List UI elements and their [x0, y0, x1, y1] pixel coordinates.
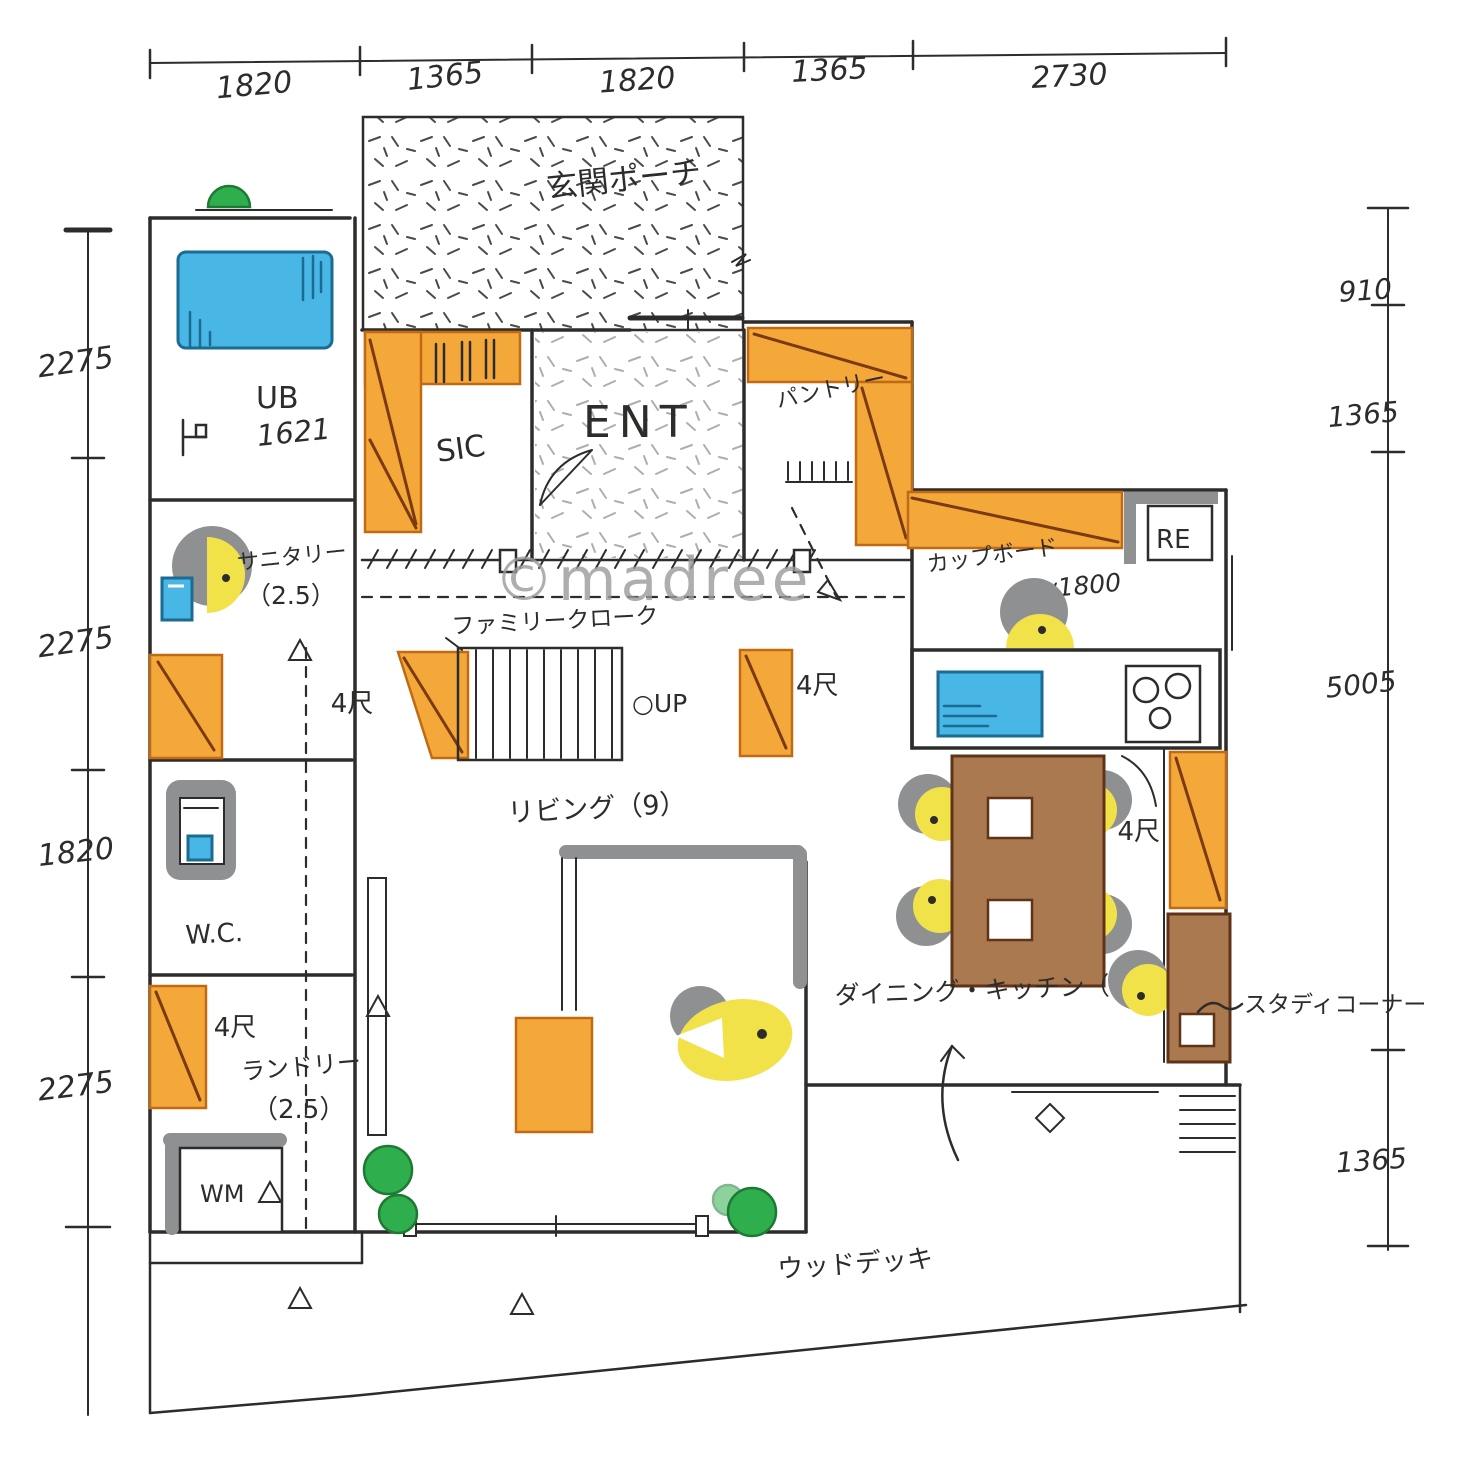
dimension-top: 1820 1365 1820 1365 2730	[150, 38, 1226, 106]
faucet	[183, 420, 206, 455]
sanitary-area: （2.5）	[246, 581, 336, 610]
sanitary-room: サニタリー （2.5）	[162, 526, 348, 620]
kitchen: カップボード w1800 RE	[908, 492, 1220, 748]
dining-table	[952, 756, 1104, 986]
toilet-room: W.C.	[166, 780, 244, 951]
porch: 玄関ポーチ	[363, 117, 750, 330]
wc-label: W.C.	[185, 918, 244, 951]
closet-label-laundry: 4尺	[214, 1013, 257, 1043]
closet-label-study: 4尺	[1117, 817, 1160, 847]
dim-top-4: 1365	[790, 51, 868, 90]
washer-label: WM	[200, 1180, 244, 1208]
pantry-hatch	[786, 462, 852, 482]
study-corner: 4尺 スタディコーナー	[1108, 752, 1426, 1062]
fridge-label: RE	[1156, 525, 1191, 555]
dimension-left: 2275 2275 1820 2275	[35, 230, 115, 1415]
pantry: パントリー	[748, 328, 912, 545]
dim-top-1: 1820	[215, 65, 294, 107]
floorplan-sketch: 1820 1365 1820 1365 2730 2275 2275 1820 …	[0, 0, 1459, 1466]
laundry-area: （2.5）	[252, 1095, 345, 1125]
bench-hatch	[1180, 1096, 1235, 1152]
bath-label: UB	[256, 381, 299, 416]
study-corner-label: スタディコーナー	[1244, 992, 1426, 1018]
door-mark	[289, 640, 311, 660]
tv-board	[516, 1018, 592, 1132]
sanitary-label: サニタリー	[236, 540, 348, 576]
wood-deck-label: ウッドデッキ	[776, 1244, 934, 1285]
watermark: ©madree	[494, 545, 812, 615]
wood-deck: ウッドデッキ	[150, 1085, 1246, 1413]
family-closet-area: 4尺 4尺 ○UP ファミリークローク	[150, 597, 906, 760]
dim-left-4: 2275	[36, 1065, 116, 1109]
sic-label: SIC	[434, 428, 487, 469]
cabinet	[162, 578, 192, 620]
shoe-closet: SIC	[365, 332, 520, 532]
dim-right-2: 1365	[1326, 395, 1400, 434]
living-label: リビング（9）	[507, 789, 688, 829]
door-mark	[511, 1294, 533, 1314]
dim-right-1: 910	[1338, 272, 1394, 309]
stairs	[458, 648, 622, 760]
door-mark	[289, 1288, 311, 1308]
bath-size: 1621	[255, 411, 332, 453]
plant	[208, 186, 250, 207]
stairs-up-label: ○UP	[632, 689, 687, 718]
plant	[379, 1195, 417, 1233]
dimension-right: 910 1365 5005 1365	[1324, 208, 1408, 1250]
laundry-label: ランドリー	[240, 1048, 362, 1086]
entrance-label: ENT	[583, 397, 695, 448]
dim-top-3: 1820	[598, 60, 677, 100]
dim-left-2: 2275	[35, 620, 115, 665]
dim-top-5: 2730	[1030, 57, 1108, 96]
dim-right-4: 1365	[1335, 1142, 1408, 1180]
laundry-room: 4尺 ランドリー （2.5） WM	[150, 986, 362, 1232]
living-room: リビング（9）	[368, 789, 800, 1135]
plant	[364, 1146, 412, 1194]
flow-arrow	[942, 1046, 958, 1160]
closet-label-cloak: 4尺	[331, 689, 374, 719]
diamond-mark	[1036, 1104, 1064, 1132]
stove	[1126, 666, 1200, 742]
dim-top-2: 1365	[405, 55, 485, 98]
plant	[728, 1188, 776, 1236]
dim-left-3: 1820	[36, 831, 116, 874]
closet-label-hall: 4尺	[796, 671, 839, 701]
dim-left-1: 2275	[35, 340, 115, 385]
